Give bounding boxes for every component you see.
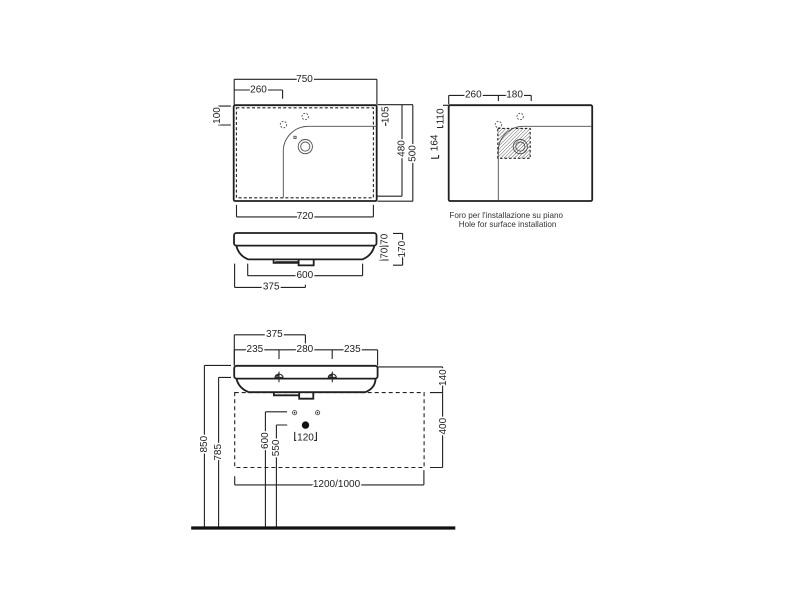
svg-text:720: 720 [297, 211, 314, 222]
svg-text:500: 500 [407, 145, 418, 162]
svg-text:180: 180 [506, 90, 523, 101]
svg-text:260: 260 [250, 84, 267, 95]
svg-text:750: 750 [296, 74, 313, 85]
svg-text:70: 70 [379, 233, 390, 245]
svg-text:235: 235 [247, 344, 264, 355]
svg-text:280: 280 [297, 344, 314, 355]
svg-text:164: 164 [430, 134, 441, 151]
svg-text:Hole for surface installation: Hole for surface installation [459, 220, 557, 229]
svg-text:375: 375 [263, 282, 280, 293]
svg-text:480: 480 [396, 140, 407, 157]
svg-text:600: 600 [296, 270, 313, 281]
svg-text:105: 105 [380, 106, 391, 123]
svg-text:260: 260 [465, 90, 482, 101]
svg-text:785: 785 [213, 444, 224, 461]
svg-text:850: 850 [199, 435, 210, 452]
svg-text:1200/1000: 1200/1000 [313, 479, 361, 490]
svg-text:400: 400 [438, 417, 449, 434]
svg-text:110: 110 [436, 108, 447, 124]
svg-text:170: 170 [397, 240, 408, 257]
svg-text:600: 600 [260, 432, 271, 449]
svg-text:140: 140 [438, 369, 449, 386]
svg-text:550: 550 [271, 439, 282, 456]
svg-text:Foro per l'installazione su pi: Foro per l'installazione su piano [449, 211, 563, 220]
svg-text:120: 120 [297, 433, 314, 444]
svg-text:70: 70 [379, 247, 390, 259]
svg-text:235: 235 [344, 344, 361, 355]
svg-text:100: 100 [212, 107, 223, 124]
svg-text:375: 375 [266, 329, 283, 340]
